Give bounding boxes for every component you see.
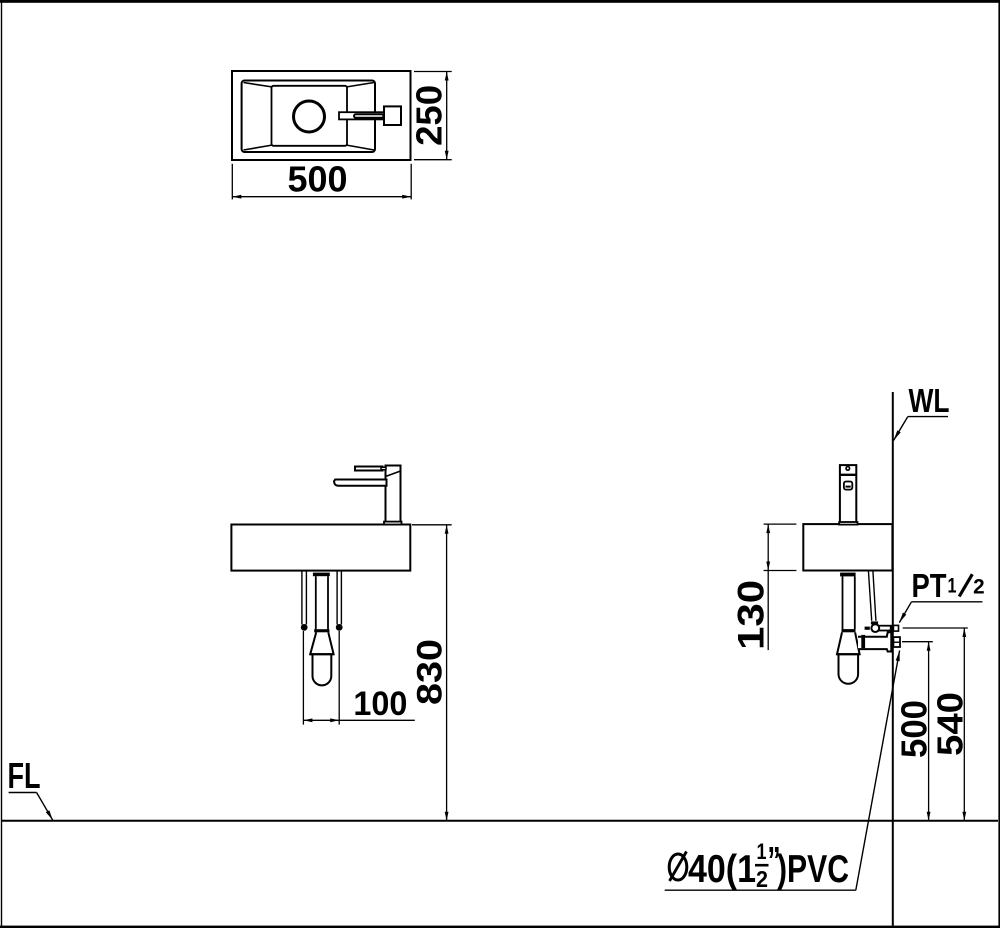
svg-text:WL: WL [909, 382, 950, 419]
svg-text:100: 100 [353, 685, 407, 723]
svg-text:FL: FL [8, 755, 41, 796]
svg-text:40(1: 40(1 [688, 848, 756, 891]
svg-text:540: 540 [930, 692, 971, 756]
svg-text:2: 2 [756, 866, 768, 892]
svg-text:1: 1 [757, 839, 767, 864]
svg-text:2: 2 [973, 576, 985, 599]
svg-text:130: 130 [731, 580, 772, 650]
svg-text:500: 500 [894, 700, 935, 758]
svg-text:PT: PT [912, 567, 947, 604]
svg-text:830: 830 [410, 639, 449, 705]
svg-text:)PVC: )PVC [777, 848, 849, 891]
svg-text:1: 1 [948, 573, 957, 597]
svg-text:250: 250 [408, 85, 449, 146]
svg-text:500: 500 [288, 158, 348, 199]
